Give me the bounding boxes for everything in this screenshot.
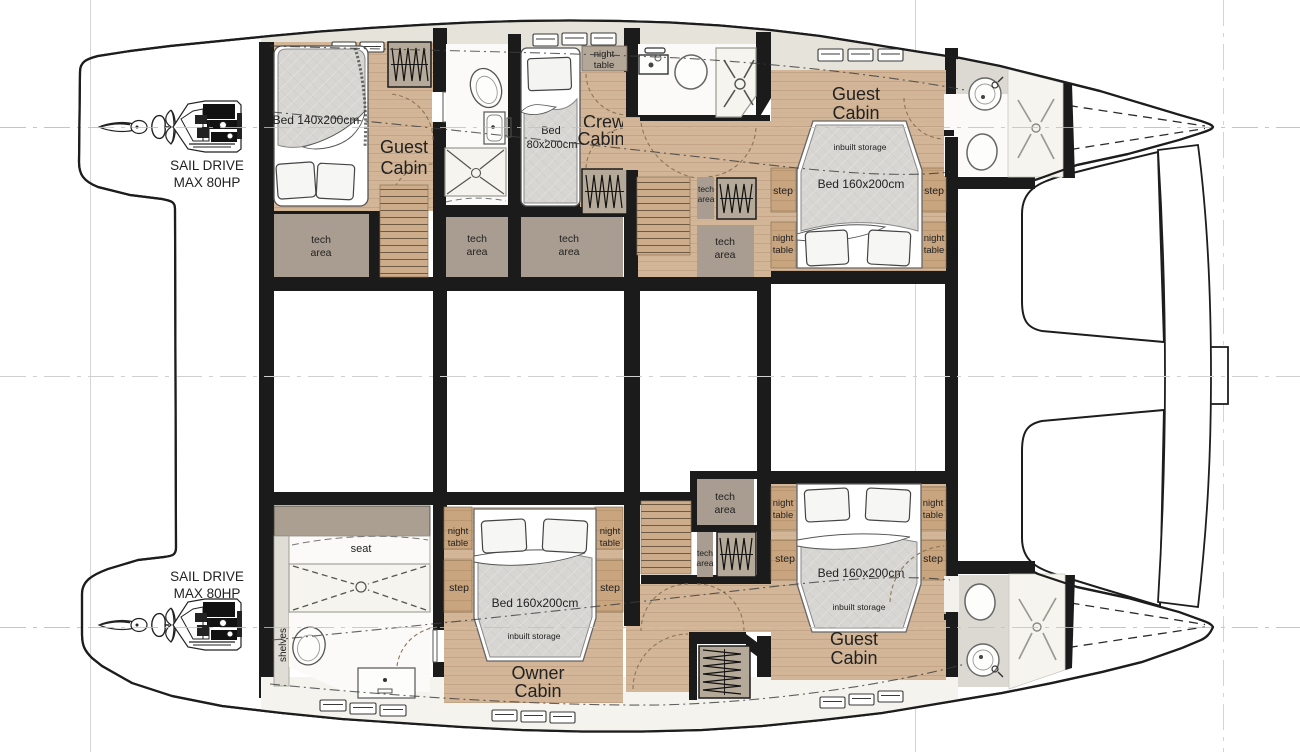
- svg-text:Cabin: Cabin: [514, 681, 561, 701]
- svg-text:SAIL DRIVE: SAIL DRIVE: [170, 569, 244, 584]
- svg-text:night: night: [448, 526, 469, 537]
- svg-text:area: area: [466, 246, 487, 258]
- svg-text:tech: tech: [698, 184, 714, 194]
- svg-text:area: area: [697, 194, 714, 204]
- svg-text:table: table: [448, 538, 469, 549]
- svg-text:table: table: [594, 60, 615, 71]
- svg-text:Cabin: Cabin: [830, 648, 877, 668]
- svg-text:Cabin: Cabin: [832, 103, 879, 123]
- svg-text:area: area: [696, 558, 713, 568]
- svg-text:tech: tech: [311, 234, 331, 246]
- svg-text:table: table: [773, 245, 794, 256]
- svg-text:tech: tech: [697, 548, 713, 558]
- svg-text:SAIL DRIVE: SAIL DRIVE: [170, 158, 244, 173]
- svg-text:table: table: [924, 245, 945, 256]
- svg-text:night: night: [600, 526, 621, 537]
- svg-text:shelves: shelves: [278, 628, 289, 662]
- svg-text:inbuilt storage: inbuilt storage: [833, 602, 886, 612]
- svg-text:Cabin: Cabin: [577, 129, 624, 149]
- svg-text:table: table: [600, 538, 621, 549]
- svg-text:tech: tech: [467, 233, 487, 245]
- svg-text:area: area: [558, 246, 579, 258]
- svg-text:Guest: Guest: [830, 629, 878, 649]
- svg-text:Owner: Owner: [511, 663, 564, 683]
- svg-text:Cabin: Cabin: [380, 158, 427, 178]
- svg-text:tech: tech: [559, 233, 579, 245]
- svg-text:night: night: [773, 233, 794, 244]
- svg-text:MAX 80HP: MAX 80HP: [174, 586, 241, 601]
- svg-text:night: night: [773, 498, 794, 509]
- svg-text:area: area: [714, 249, 735, 261]
- svg-text:Bed 160x200cm: Bed 160x200cm: [492, 596, 579, 610]
- svg-text:Bed: Bed: [541, 125, 561, 137]
- svg-text:step: step: [773, 185, 793, 197]
- svg-text:night: night: [924, 233, 945, 244]
- svg-text:table: table: [773, 510, 794, 521]
- svg-text:tech: tech: [715, 491, 735, 503]
- svg-text:seat: seat: [351, 543, 372, 555]
- svg-text:Bed 140x200cm: Bed 140x200cm: [273, 113, 360, 127]
- svg-text:step: step: [924, 185, 944, 197]
- svg-text:tech: tech: [715, 236, 735, 248]
- svg-text:inbuilt storage: inbuilt storage: [834, 142, 887, 152]
- svg-text:Bed 160x200cm: Bed 160x200cm: [818, 177, 905, 191]
- svg-text:step: step: [600, 582, 620, 594]
- svg-text:area: area: [310, 247, 331, 259]
- svg-text:step: step: [775, 553, 795, 565]
- svg-text:night: night: [923, 498, 944, 509]
- svg-text:Guest: Guest: [380, 137, 428, 157]
- svg-text:inbuilt storage: inbuilt storage: [508, 631, 561, 641]
- svg-text:step: step: [923, 553, 943, 565]
- svg-text:area: area: [714, 504, 735, 516]
- svg-text:table: table: [923, 510, 944, 521]
- svg-text:MAX 80HP: MAX 80HP: [174, 175, 241, 190]
- svg-text:step: step: [449, 582, 469, 594]
- svg-text:Guest: Guest: [832, 84, 880, 104]
